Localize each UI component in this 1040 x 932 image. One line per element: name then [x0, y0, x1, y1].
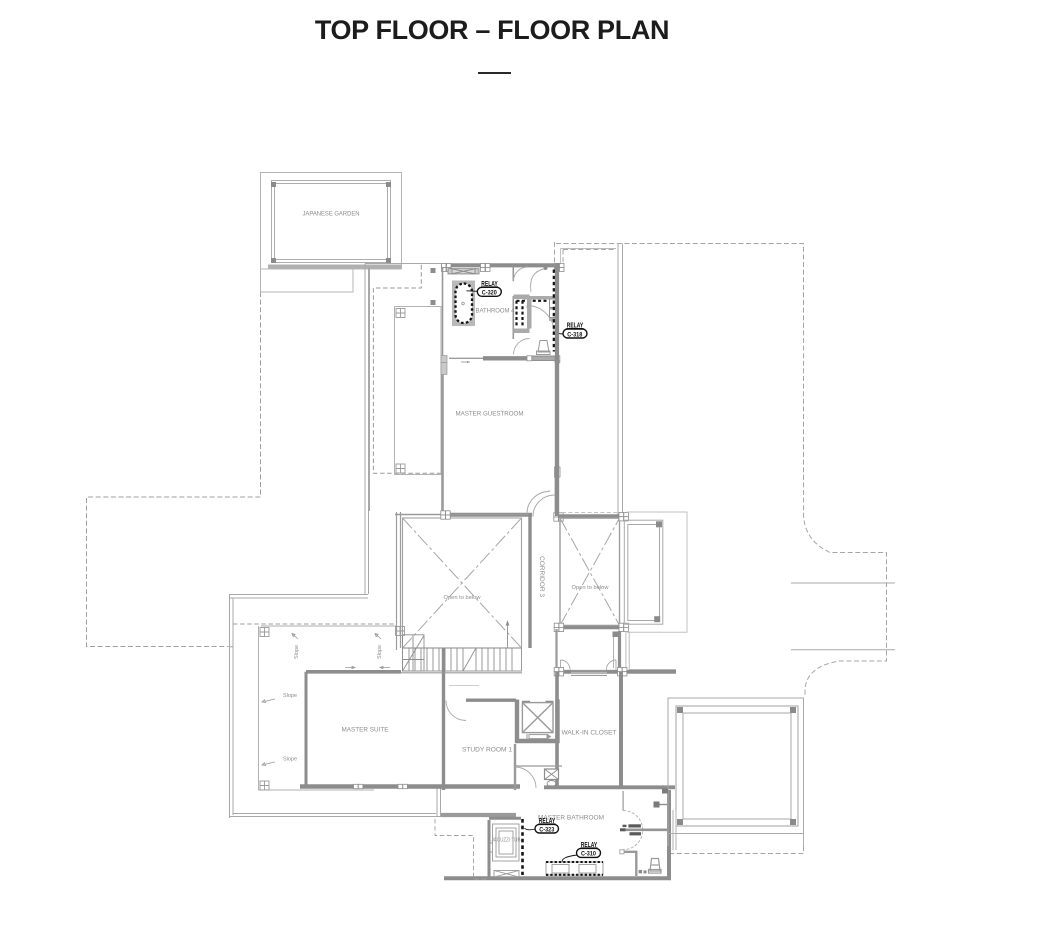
svg-text:Slope: Slope: [283, 757, 297, 763]
svg-text:Slope: Slope: [377, 645, 383, 659]
svg-text:Open to below: Open to below: [572, 585, 610, 591]
svg-text:C-310: C-310: [581, 851, 596, 858]
svg-text:WALK-IN CLOSET: WALK-IN CLOSET: [562, 731, 617, 737]
svg-text:Slope: Slope: [294, 645, 300, 659]
svg-text:CORRIDOR 3: CORRIDOR 3: [538, 556, 544, 598]
svg-text:BATHROOM 4: BATHROOM 4: [476, 309, 516, 315]
svg-text:C-318: C-318: [567, 331, 582, 338]
svg-text:Slope: Slope: [283, 693, 297, 699]
svg-text:C-320: C-320: [482, 290, 497, 297]
svg-text:STUDY ROOM 1: STUDY ROOM 1: [462, 748, 513, 754]
svg-text:MASTER GUESTROOM: MASTER GUESTROOM: [456, 412, 524, 418]
svg-text:JAPANESE GARDEN: JAPANESE GARDEN: [303, 212, 360, 218]
svg-text:MASTER SUITE: MASTER SUITE: [342, 728, 389, 734]
svg-text:C-323: C-323: [539, 826, 554, 833]
svg-text:Open to below: Open to below: [444, 595, 482, 601]
svg-text:JACUZZI TUB: JACUZZI TUB: [492, 838, 522, 844]
